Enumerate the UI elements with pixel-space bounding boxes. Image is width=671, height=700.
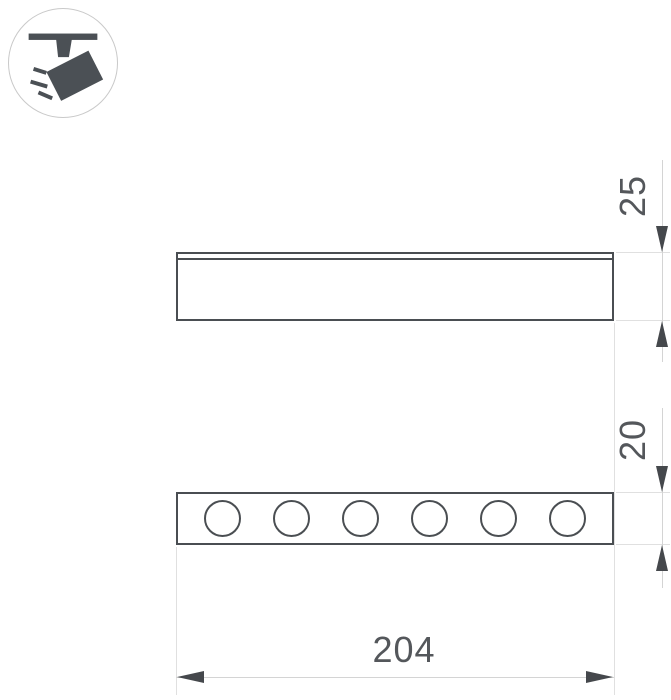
dimension-label-height: 25 (613, 151, 653, 241)
arrowhead-icon (656, 226, 668, 252)
dimension-label-length: 204 (359, 630, 449, 670)
dimension-line-204 (176, 677, 614, 678)
led-circle (411, 500, 448, 537)
arrowhead-icon (656, 321, 668, 347)
arrowhead-icon (586, 671, 613, 683)
track-spotlight-icon (9, 9, 117, 117)
side-view (176, 252, 614, 321)
led-circle (480, 500, 517, 537)
led-circle (342, 500, 379, 537)
arrowhead-icon (656, 545, 668, 571)
extension-line (614, 323, 615, 695)
technical-drawing: 25 20 204 (0, 0, 671, 700)
bottom-view led-array (176, 492, 614, 545)
led-circle (273, 500, 310, 537)
product-type-badge (8, 8, 118, 118)
led-circle (204, 500, 241, 537)
side-view-top-cap-line (178, 258, 612, 260)
arrowhead-icon (177, 671, 204, 683)
led-circle (549, 500, 586, 537)
dimension-label-module-height: 20 (613, 395, 653, 485)
arrowhead-icon (656, 466, 668, 492)
